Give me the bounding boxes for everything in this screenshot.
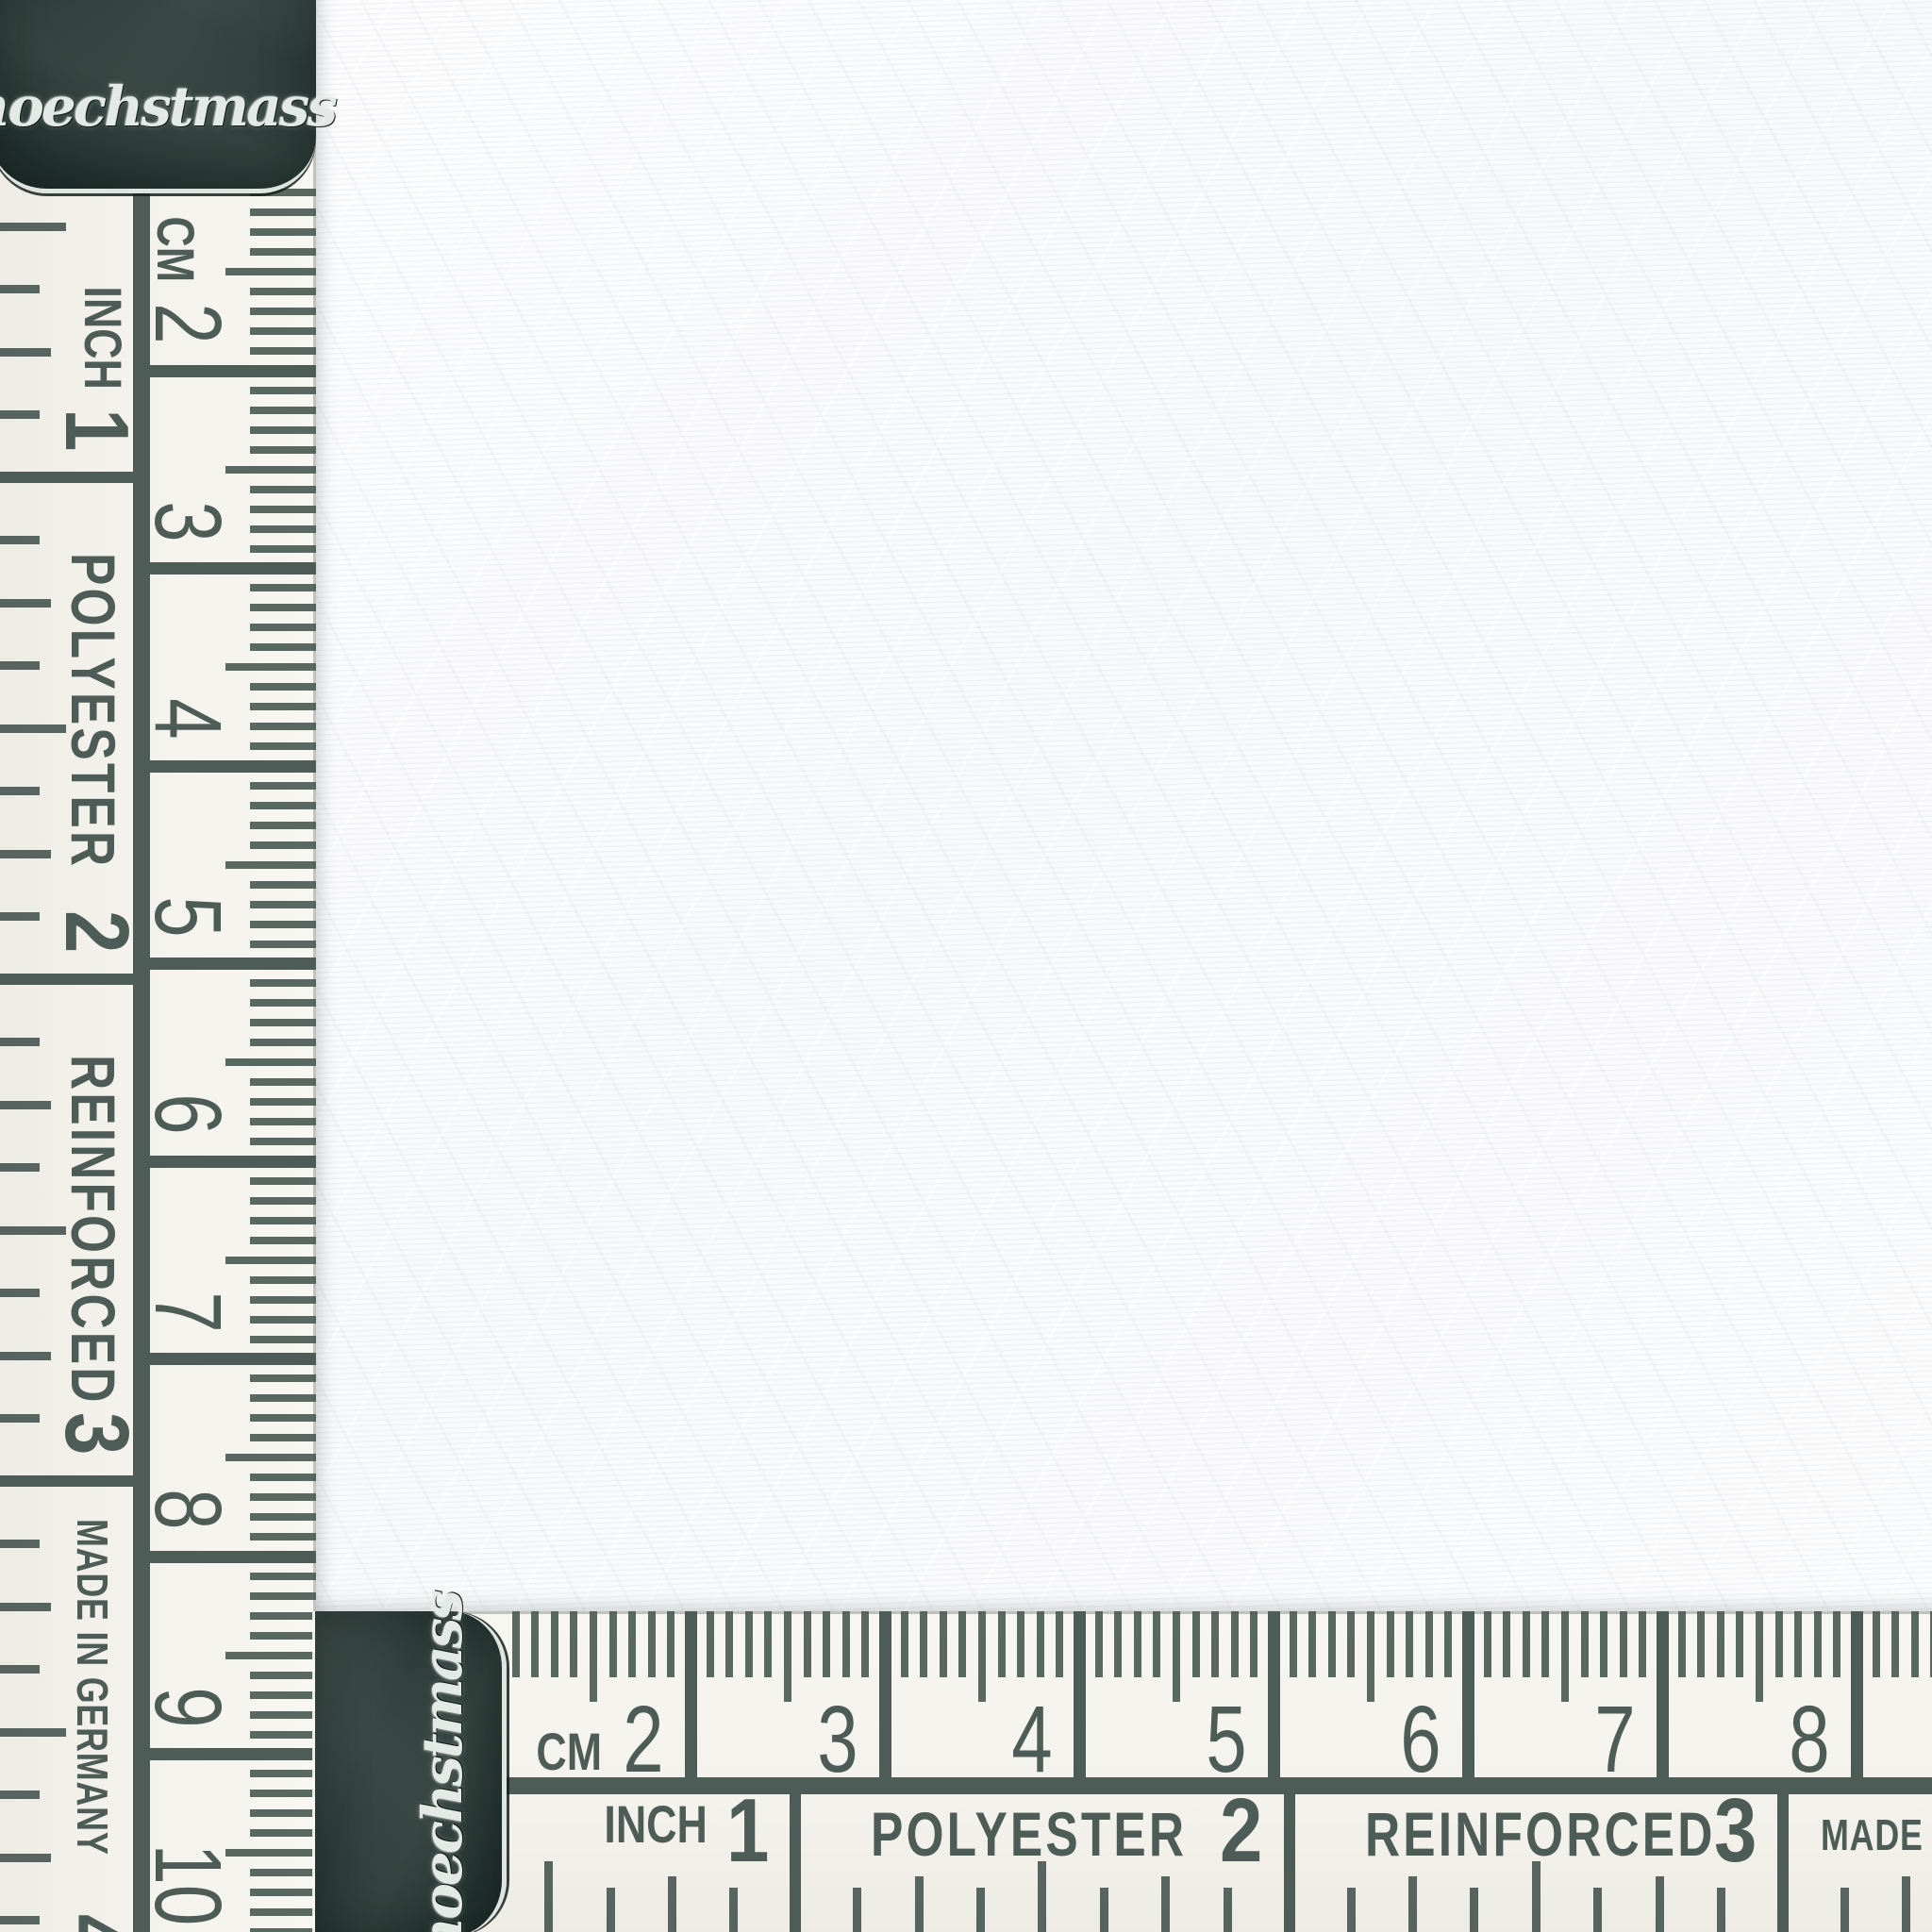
inch-tick (0, 599, 51, 608)
inch-tick (0, 1790, 40, 1799)
mm-tick (225, 268, 316, 275)
mm-tick (1736, 1611, 1743, 1677)
mm-tick (1134, 1611, 1141, 1677)
mm-tick (250, 1790, 316, 1797)
inch-gridline (0, 1475, 148, 1487)
mm-tick (1484, 1611, 1491, 1677)
mm-tick (1794, 1611, 1802, 1677)
cm-number: 5 (152, 896, 224, 937)
cm-number: 3 (152, 501, 224, 541)
mm-tick (998, 1611, 1006, 1677)
mm-tick (842, 1611, 850, 1677)
mm-tick (250, 1276, 316, 1284)
inch-tick (0, 1854, 51, 1862)
mm-tick (250, 1632, 316, 1640)
mm-tick (250, 643, 316, 651)
cm-number-cell: 4 (862, 1687, 1066, 1775)
mm-tick (1095, 1611, 1103, 1677)
mm-tick (250, 742, 316, 750)
mm-tick (250, 545, 316, 553)
inch-tick (0, 536, 40, 544)
mm-tick (225, 1849, 316, 1857)
mm-tick (920, 1611, 927, 1677)
mm-tick (250, 1770, 316, 1777)
mm-tick (250, 979, 316, 987)
mm-tick (1911, 1611, 1919, 1677)
inch-tick (1347, 1888, 1356, 1932)
inch-tick (1100, 1888, 1108, 1932)
mm-tick (1814, 1611, 1822, 1677)
cm-number-cell: 5 (1057, 1687, 1260, 1775)
mm-tick (1290, 1611, 1297, 1677)
mm-tick (1425, 1611, 1433, 1677)
fiber-word: POLYESTER (871, 1806, 1226, 1868)
measuring-tape-horizontal: hoechstmass CM23456789INCH12POLYESTER3RE… (302, 1611, 1932, 1932)
mm-tick (250, 1118, 316, 1125)
mm-tick (250, 782, 316, 790)
mm-tick (250, 1908, 316, 1916)
inch-number: 2 (1220, 1796, 1262, 1867)
mm-tick (590, 1611, 597, 1702)
cm-number: 4 (1012, 1704, 1053, 1775)
mm-tick (1541, 1611, 1549, 1677)
cm-number-cell: 7 (152, 1142, 241, 1346)
mm-tick (1503, 1611, 1510, 1677)
mm-tick (250, 208, 316, 216)
mm-tick (570, 1611, 577, 1677)
mm-tick (628, 1611, 636, 1677)
mm-tick (250, 941, 316, 948)
mm-tick (250, 1138, 316, 1145)
mm-tick (1891, 1611, 1899, 1677)
inch-gridline (0, 472, 148, 483)
mm-tick (1717, 1611, 1724, 1677)
mm-tick (250, 1197, 316, 1205)
mm-tick (1561, 1611, 1569, 1702)
inch-tick (0, 223, 66, 231)
inch-tick (0, 1101, 51, 1109)
cm-number-cell: 3 (668, 1687, 872, 1775)
inch-tick (1532, 1861, 1541, 1932)
tape-end-cap-vertical: hoechstmass (0, 0, 316, 193)
mm-tick (250, 822, 316, 829)
inch-tick (976, 1888, 985, 1932)
cm-number: 9 (152, 1687, 224, 1727)
mm-tick (250, 1336, 316, 1343)
mm-tick (250, 604, 316, 611)
inch-tick (1408, 1876, 1417, 1932)
mm-tick (250, 347, 316, 355)
mm-tick (250, 446, 316, 454)
mm-tick (250, 841, 316, 849)
inch-tick (1593, 1888, 1602, 1932)
cm-number: 5 (1207, 1704, 1247, 1775)
mm-tick (745, 1611, 753, 1677)
mm-tick (1639, 1611, 1646, 1677)
inch-tick (915, 1876, 924, 1932)
mm-tick (804, 1611, 811, 1677)
inch-tick (0, 410, 40, 419)
inch-tick (0, 724, 66, 733)
cm-number: 7 (1595, 1704, 1636, 1775)
mm-tick (1600, 1611, 1607, 1677)
fiber-word: POLYESTER (59, 553, 122, 915)
photo-scene: hoechstmass CM23456789INCH12POLYESTER3RE… (0, 0, 1932, 1932)
mm-tick (225, 466, 316, 474)
mm-tick (551, 1611, 558, 1677)
mm-tick (1406, 1611, 1413, 1677)
mm-tick (958, 1611, 966, 1677)
mm-tick (250, 1672, 316, 1679)
mm-tick (901, 1611, 908, 1677)
mm-tick (250, 1177, 316, 1185)
cm-number: 8 (152, 1490, 224, 1530)
inch-tick (1161, 1876, 1170, 1932)
inch-tick (0, 1728, 66, 1737)
cm-number-cell: 9 (152, 1538, 241, 1741)
inch-gridline (0, 974, 148, 985)
mm-tick (250, 1711, 316, 1719)
inch-tick (0, 1916, 40, 1924)
inch-number: 4 (60, 1914, 131, 1932)
mm-tick (250, 723, 316, 730)
mm-tick (1173, 1611, 1180, 1702)
inch-tick (0, 1163, 40, 1172)
mm-tick (250, 1217, 316, 1224)
fiber-word: MADE IN GERMANY (50, 1519, 122, 1881)
mm-tick (250, 486, 316, 493)
mm-tick (250, 248, 316, 256)
mm-tick (250, 1829, 316, 1837)
mm-tick (1581, 1611, 1589, 1677)
cm-number-cell: 5 (152, 747, 241, 951)
cm-number-cell: 6 (1251, 1687, 1455, 1775)
inch-gridline (1777, 1779, 1789, 1932)
mm-tick (250, 1592, 316, 1600)
tape-end-cap-horizontal: hoechstmass (315, 1611, 507, 1932)
mm-tick (784, 1611, 791, 1702)
cm-number-cell: 10 (152, 1735, 241, 1932)
inch-tick (0, 661, 40, 670)
mm-tick (978, 1611, 986, 1702)
mm-tick (667, 1611, 675, 1677)
cm-number-cell: 8 (152, 1340, 241, 1543)
mm-tick (1114, 1611, 1122, 1677)
cm-number-cell: 3 (152, 352, 241, 556)
cm-number: 6 (152, 1094, 224, 1135)
mm-tick (250, 901, 316, 908)
mm-tick (250, 1493, 316, 1501)
brand-logo-script: hoechstmass (410, 1592, 475, 1932)
cm-number: 4 (152, 699, 224, 740)
inch-tick (0, 1226, 66, 1235)
mm-tick (250, 525, 316, 533)
mm-tick (1308, 1611, 1316, 1677)
inch-tick (0, 850, 51, 858)
inch-tick (1224, 1888, 1232, 1932)
cm-number: 6 (1401, 1704, 1441, 1775)
mm-tick (250, 802, 316, 809)
mm-tick (250, 1612, 316, 1620)
mm-tick (250, 999, 316, 1007)
mm-tick (512, 1611, 520, 1677)
cm-number: 8 (1790, 1704, 1830, 1775)
mm-tick (1873, 1611, 1880, 1677)
mm-tick (250, 506, 316, 513)
mm-tick (250, 1296, 316, 1304)
mm-tick (1444, 1611, 1452, 1677)
inch-tick (0, 912, 40, 921)
mm-tick (225, 1454, 316, 1461)
mm-tick (250, 624, 316, 631)
mm-tick (225, 1058, 316, 1066)
mm-tick (1775, 1611, 1783, 1677)
mm-tick (250, 228, 316, 236)
mm-tick (250, 703, 316, 710)
mm-tick (225, 1652, 316, 1659)
inch-tick (729, 1888, 738, 1932)
mm-tick (250, 1691, 316, 1699)
mm-tick (1523, 1611, 1530, 1677)
mm-tick (1697, 1611, 1705, 1677)
inch-tick (668, 1876, 676, 1932)
inch-tick (0, 1603, 51, 1611)
inch-tick (1840, 1888, 1849, 1932)
inch-unit-label: INCH (604, 1796, 708, 1846)
mm-tick (1231, 1611, 1239, 1677)
cm-number: 3 (818, 1704, 858, 1775)
mm-tick (250, 683, 316, 691)
mm-tick (1367, 1611, 1374, 1702)
cm-number: 2 (152, 304, 224, 344)
inch-tick (1717, 1888, 1725, 1932)
mm-tick (1387, 1611, 1394, 1677)
inch-number: 1 (726, 1796, 769, 1867)
mm-tick (250, 1078, 316, 1086)
cm-unit-label: CM (537, 1732, 603, 1775)
mm-tick (250, 407, 316, 414)
cm-number-cell: 7 (1445, 1687, 1649, 1775)
inch-tick (0, 787, 40, 795)
mm-tick (250, 1039, 316, 1046)
mm-tick (1056, 1611, 1063, 1677)
mm-tick (250, 1474, 316, 1481)
mm-tick (250, 1394, 316, 1402)
cm-number-cell: 9 (1834, 1687, 1932, 1775)
mm-tick (250, 1928, 316, 1932)
mm-tick (250, 1513, 316, 1521)
mm-tick (1620, 1611, 1627, 1677)
cm-number: 10 (152, 1843, 224, 1925)
cm-number-cell: 8 (1640, 1687, 1843, 1775)
inch-tick (1470, 1888, 1478, 1932)
inch-tick (0, 1414, 40, 1423)
fiber-word: REINFORCED (59, 1055, 122, 1417)
mm-tick (250, 1434, 316, 1441)
mm-tick (250, 1809, 316, 1817)
mm-tick (225, 663, 316, 671)
inch-tick (0, 285, 40, 293)
inch-tick (0, 348, 51, 357)
mm-tick (1347, 1611, 1355, 1677)
mm-tick (1833, 1611, 1840, 1677)
mm-tick (1153, 1611, 1160, 1677)
mm-tick (250, 881, 316, 889)
fiber-word: MADE IN GERMANY (1821, 1806, 1932, 1877)
mm-tick (823, 1611, 830, 1677)
mm-tick (1192, 1611, 1200, 1677)
mm-tick (250, 426, 316, 434)
inch-number: 2 (60, 910, 131, 953)
inch-number: 3 (60, 1412, 131, 1455)
mm-tick (225, 861, 316, 869)
inch-tick (0, 1289, 40, 1297)
mm-tick (725, 1611, 733, 1677)
brand-logo-script: hoechstmass (0, 75, 335, 139)
mm-tick (225, 1257, 316, 1264)
mm-tick (250, 1316, 316, 1324)
cm-number: 7 (152, 1291, 224, 1332)
inch-tick (1038, 1861, 1046, 1932)
mm-tick (250, 1019, 316, 1026)
mm-tick (250, 1869, 316, 1876)
mm-tick (1017, 1611, 1024, 1677)
inch-tick (1902, 1876, 1910, 1932)
inch-tick (1656, 1876, 1664, 1932)
inch-gridline (1284, 1779, 1295, 1932)
inch-unit-label: INCH (81, 286, 131, 390)
mm-tick (861, 1611, 869, 1677)
cm-number-cell: 6 (152, 944, 241, 1148)
inch-tick (607, 1888, 615, 1932)
mm-tick (764, 1611, 772, 1677)
inch-tick (0, 1038, 40, 1046)
mm-tick (250, 387, 316, 394)
mm-tick (1756, 1611, 1763, 1702)
mm-tick (648, 1611, 656, 1677)
mm-tick (250, 308, 316, 315)
mm-tick (250, 327, 316, 335)
mm-tick (707, 1611, 714, 1677)
mm-tick (250, 921, 316, 928)
cm-unit-label: CM (152, 217, 195, 283)
mm-tick (250, 1414, 316, 1422)
inch-number: 1 (60, 408, 131, 451)
inch-tick (0, 1665, 40, 1674)
inch-tick (544, 1861, 553, 1932)
mm-tick (250, 1889, 316, 1896)
cm-number-cell: 4 (152, 549, 241, 753)
mm-tick (1037, 1611, 1044, 1677)
mm-tick (250, 1237, 316, 1244)
mm-tick (1328, 1611, 1336, 1677)
mm-tick (250, 1573, 316, 1580)
fiber-word: REINFORCED (1365, 1806, 1721, 1868)
mm-tick (250, 1098, 316, 1106)
mm-tick (940, 1611, 947, 1677)
mm-tick (1250, 1611, 1257, 1677)
mm-tick (250, 1533, 316, 1541)
inch-tick (0, 1352, 51, 1360)
inch-tick (853, 1888, 861, 1932)
mm-tick (250, 288, 316, 295)
mm-tick (250, 1731, 316, 1739)
inch-gridline (790, 1779, 801, 1932)
cm-number: 2 (624, 1704, 664, 1775)
mm-tick (531, 1611, 539, 1677)
mm-tick (250, 584, 316, 591)
inch-tick (0, 1540, 40, 1548)
mm-tick (609, 1611, 617, 1677)
mm-tick (250, 1374, 316, 1382)
inch-number-cell: INCH1 (44, 251, 131, 464)
mm-tick (1211, 1611, 1219, 1677)
measuring-tape-vertical: hoechstmass CM2345678910INCH12POLYESTER3… (0, 0, 316, 1932)
mm-tick (1678, 1611, 1686, 1677)
inch-number-cell: INCH1 (569, 1796, 782, 1883)
